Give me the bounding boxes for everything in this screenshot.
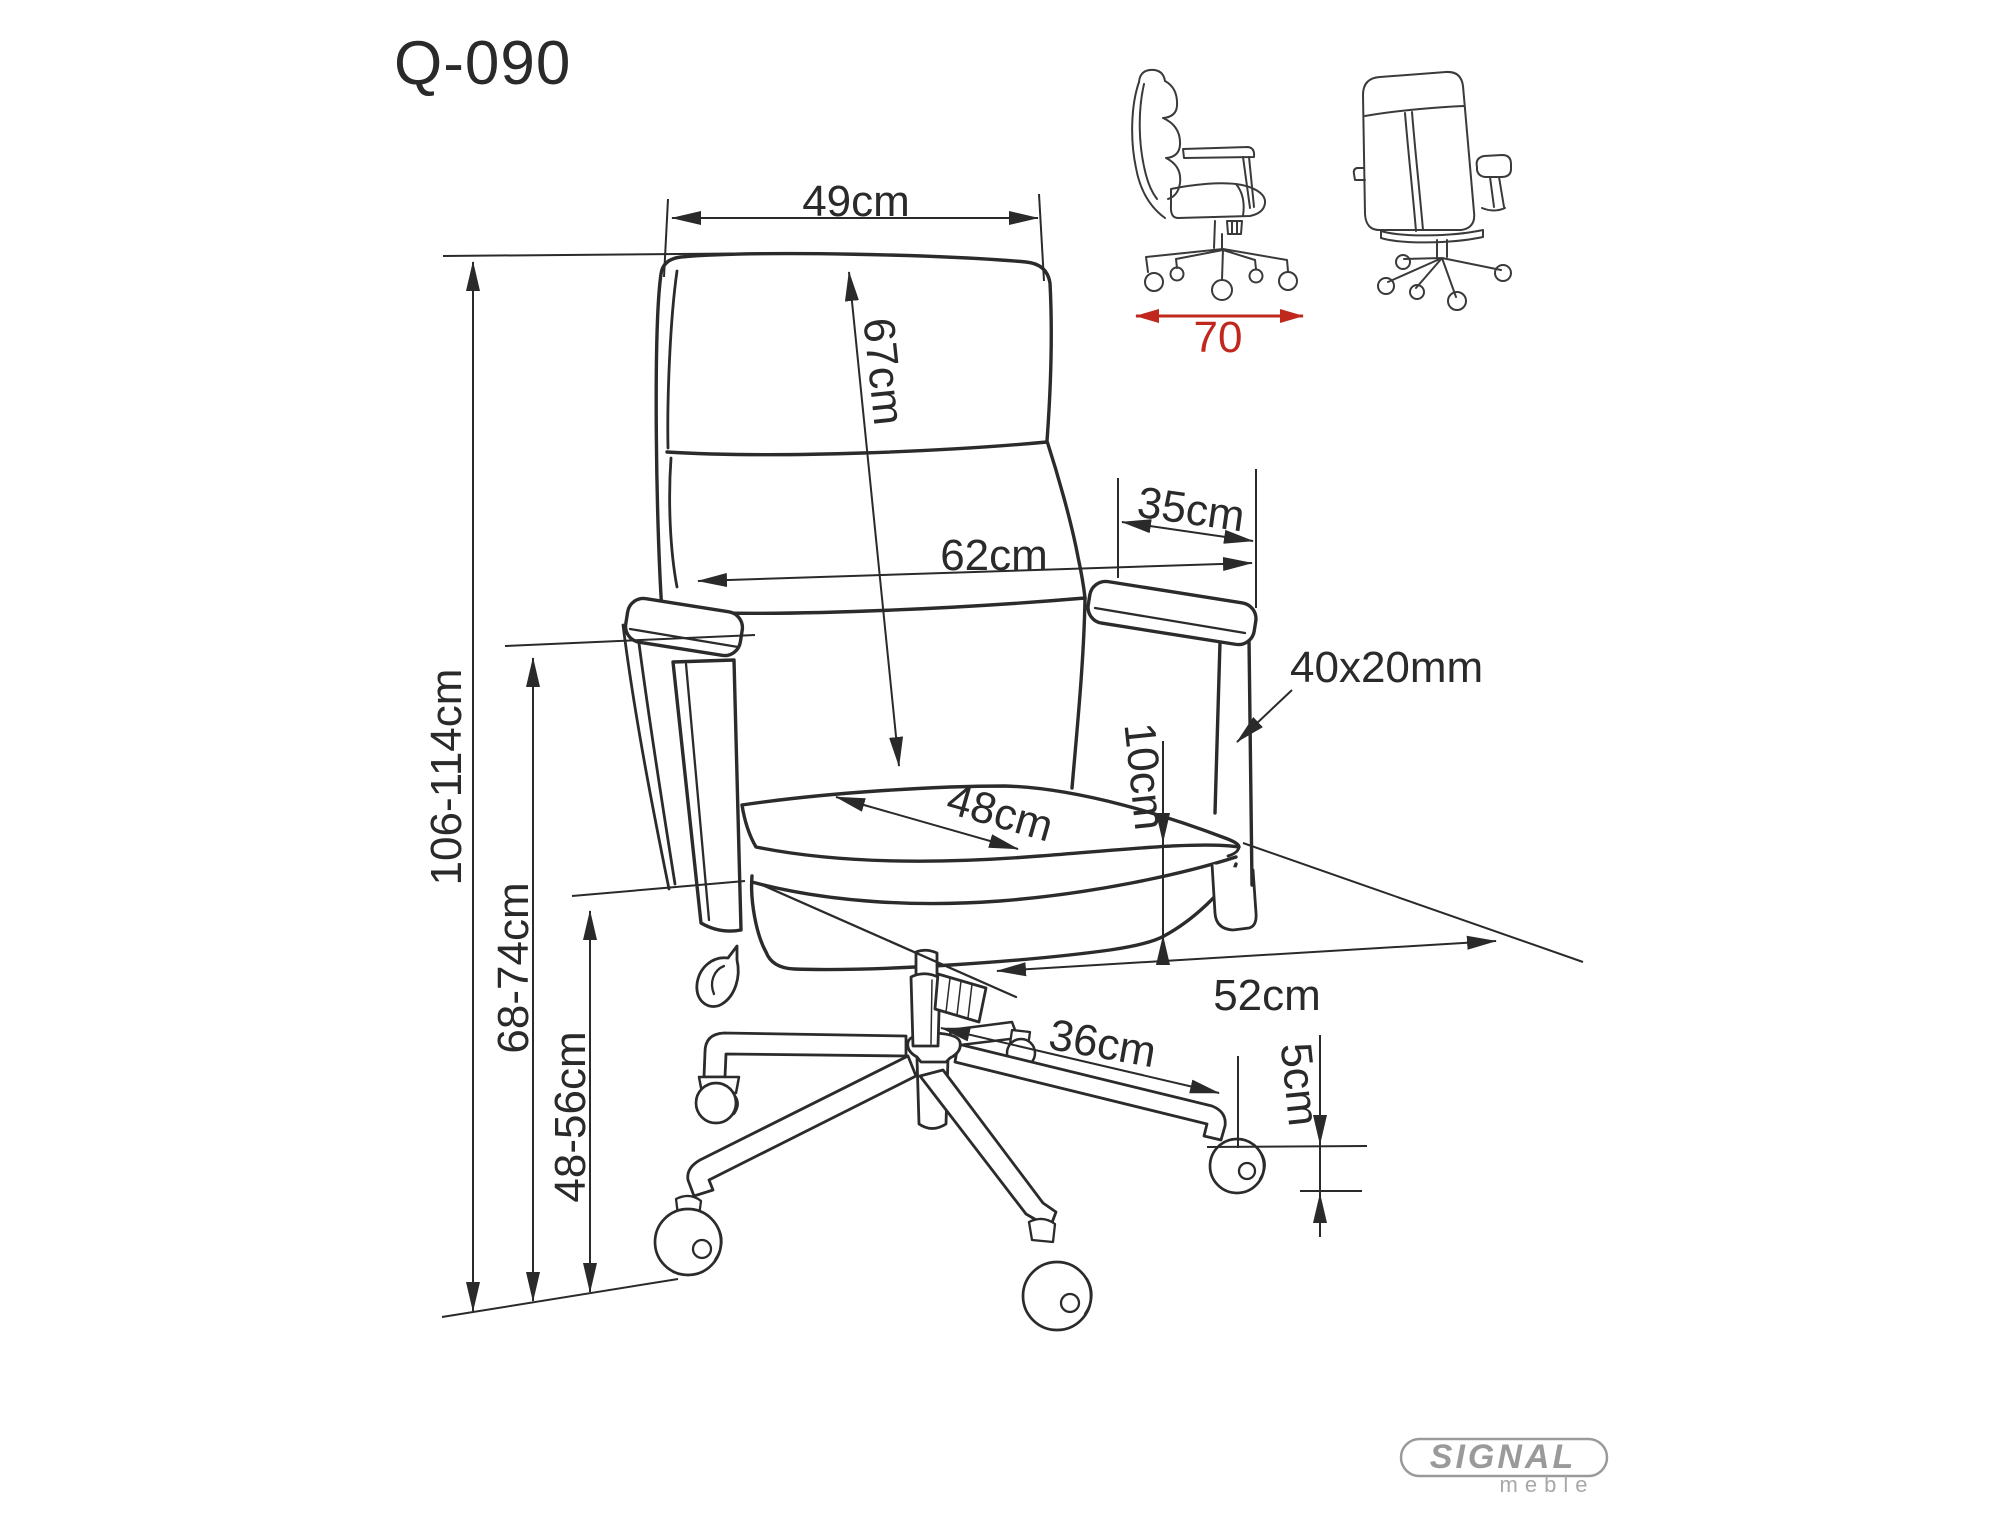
svg-text:106-114cm: 106-114cm — [422, 669, 471, 886]
svg-text:68-74cm: 68-74cm — [489, 882, 538, 1053]
svg-text:Q-090: Q-090 — [394, 29, 571, 98]
svg-text:49cm: 49cm — [802, 177, 910, 226]
svg-text:70: 70 — [1194, 313, 1243, 362]
svg-text:36cm: 36cm — [1045, 1010, 1159, 1077]
svg-text:SIGNAL: SIGNAL — [1430, 1438, 1576, 1476]
svg-text:40x20mm: 40x20mm — [1290, 643, 1483, 692]
svg-text:35cm: 35cm — [1134, 478, 1247, 541]
svg-text:5cm: 5cm — [1271, 1041, 1328, 1129]
svg-text:62cm: 62cm — [940, 531, 1048, 580]
svg-text:52cm: 52cm — [1213, 971, 1321, 1020]
svg-text:meble: meble — [1500, 1472, 1595, 1497]
svg-text:48-56cm: 48-56cm — [546, 1031, 595, 1202]
